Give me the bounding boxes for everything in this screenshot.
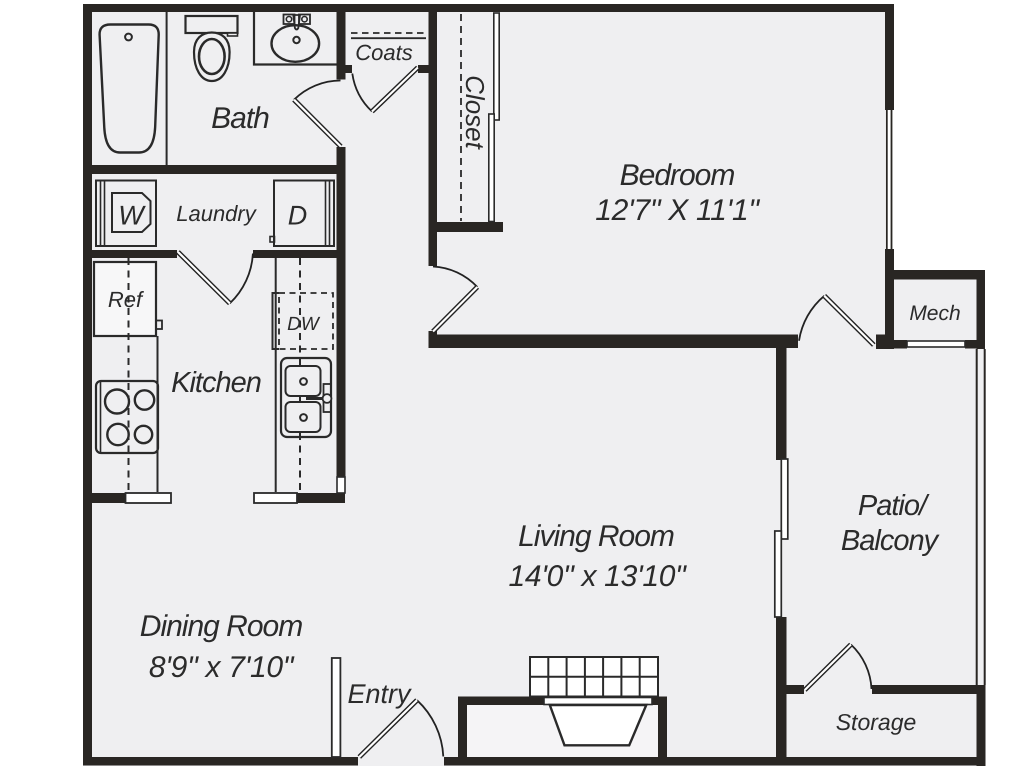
svg-text:Dining Room: Dining Room [140, 610, 302, 643]
svg-text:12'7" X 11'1": 12'7" X 11'1" [595, 194, 760, 227]
svg-text:W: W [118, 201, 146, 231]
svg-text:Balcony: Balcony [841, 525, 940, 557]
svg-text:Closet: Closet [460, 75, 490, 150]
svg-text:Ref: Ref [108, 287, 145, 312]
svg-text:Coats: Coats [355, 40, 412, 65]
svg-text:Bedroom: Bedroom [620, 159, 735, 192]
svg-text:Entry: Entry [347, 679, 412, 709]
svg-text:DW: DW [287, 314, 321, 335]
svg-text:Bath: Bath [211, 102, 269, 135]
svg-text:Kitchen: Kitchen [171, 367, 261, 399]
svg-text:Mech: Mech [909, 302, 960, 325]
svg-text:8'9" x 7'10": 8'9" x 7'10" [149, 651, 295, 684]
svg-text:Storage: Storage [836, 709, 917, 735]
svg-text:Laundry: Laundry [176, 201, 258, 226]
svg-text:Patio/: Patio/ [858, 490, 930, 522]
svg-text:D: D [288, 201, 308, 231]
svg-text:Living Room: Living Room [518, 520, 674, 553]
svg-text:14'0" x 13'10": 14'0" x 13'10" [508, 560, 687, 593]
